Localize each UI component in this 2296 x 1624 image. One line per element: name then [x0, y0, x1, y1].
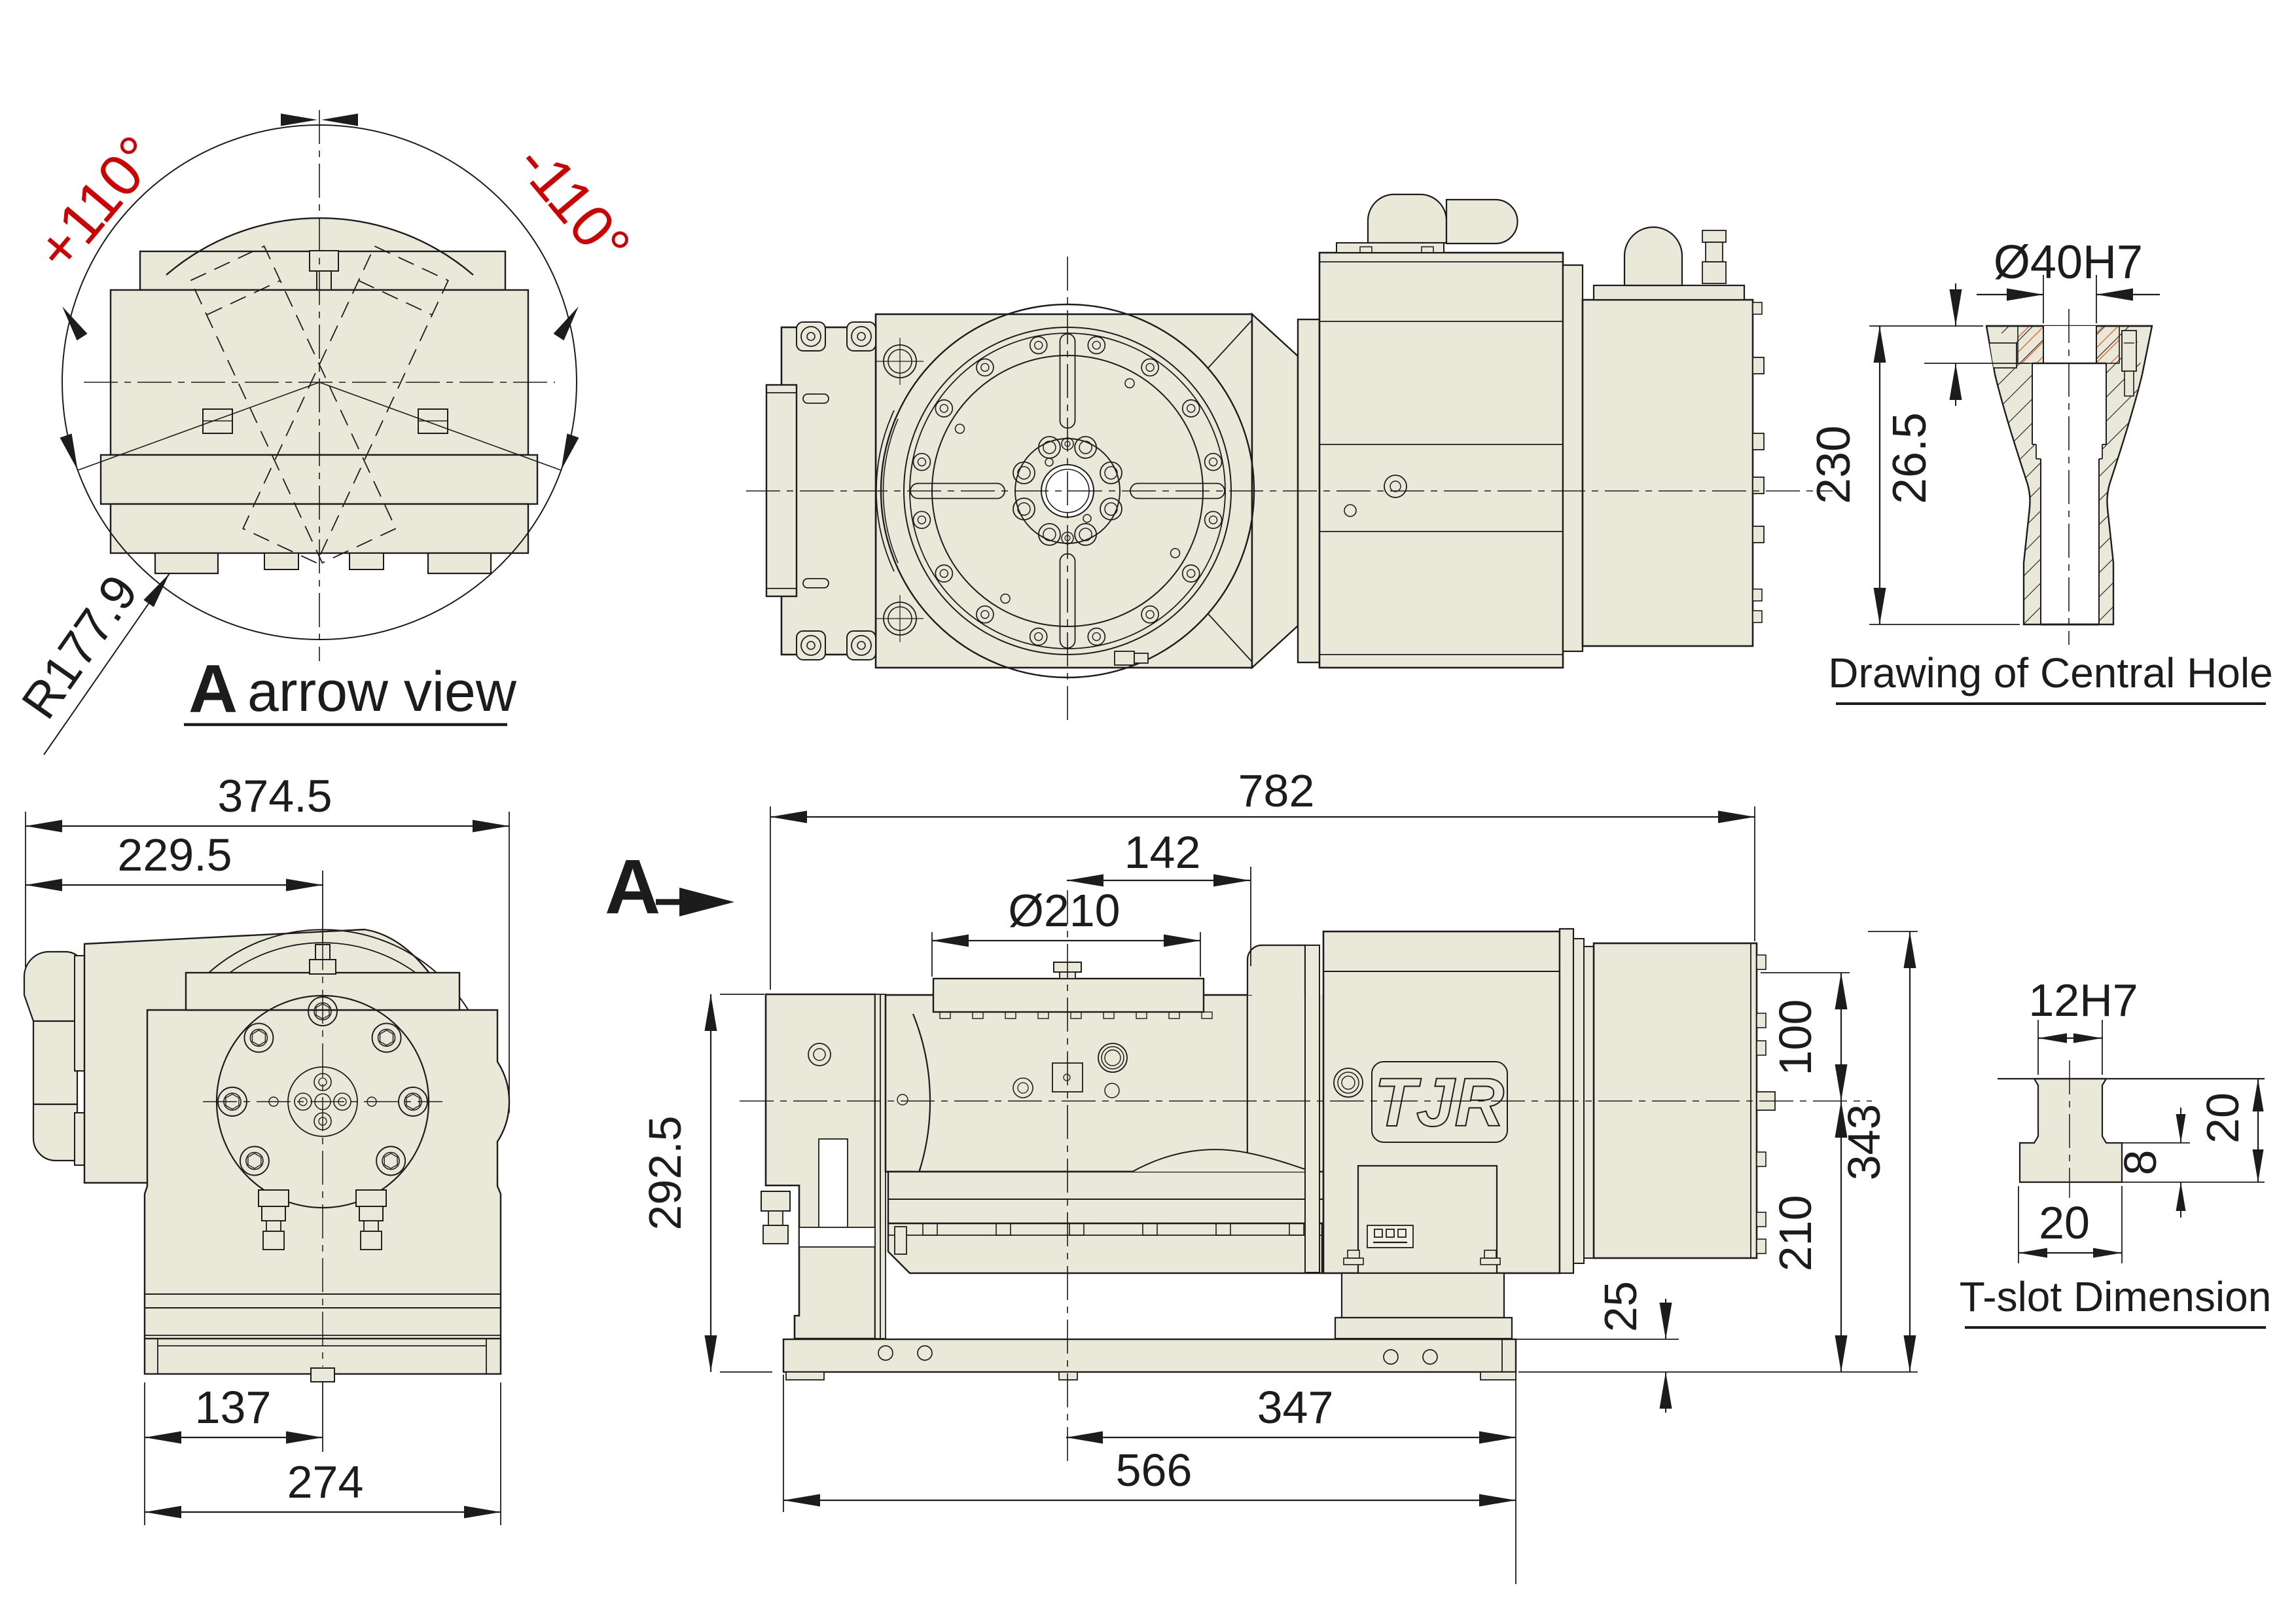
svg-text:210: 210 [1770, 1195, 1821, 1272]
svg-text:T-slot Dimension: T-slot Dimension [1960, 1273, 2272, 1320]
svg-text:347: 347 [1257, 1382, 1334, 1433]
svg-text:arrow view: arrow view [247, 660, 517, 723]
svg-text:Ø210: Ø210 [1008, 885, 1120, 936]
svg-text:TJR: TJR [1374, 1064, 1505, 1141]
svg-text:292.5: 292.5 [639, 1115, 691, 1230]
svg-text:230: 230 [1808, 425, 1860, 504]
svg-text:25: 25 [1595, 1281, 1646, 1332]
svg-text:A: A [188, 651, 238, 727]
svg-text:100: 100 [1770, 1000, 1821, 1076]
svg-text:374.5: 374.5 [217, 770, 332, 821]
svg-text:142: 142 [1124, 827, 1201, 878]
svg-text:Ø40H7: Ø40H7 [1994, 236, 2143, 289]
svg-text:8: 8 [2115, 1150, 2166, 1176]
svg-text:274: 274 [287, 1456, 364, 1507]
svg-text:26.5: 26.5 [1884, 412, 1936, 504]
svg-text:137: 137 [195, 1382, 272, 1433]
svg-text:Drawing of Central Hole: Drawing of Central Hole [1828, 649, 2272, 696]
svg-text:12H7: 12H7 [2028, 975, 2138, 1026]
svg-text:566: 566 [1116, 1445, 1193, 1496]
svg-text:20: 20 [2197, 1092, 2248, 1144]
svg-text:A: A [605, 844, 660, 930]
svg-text:782: 782 [1238, 765, 1315, 816]
svg-text:343: 343 [1839, 1104, 1890, 1181]
svg-text:20: 20 [2039, 1197, 2090, 1248]
svg-text:229.5: 229.5 [117, 829, 232, 880]
